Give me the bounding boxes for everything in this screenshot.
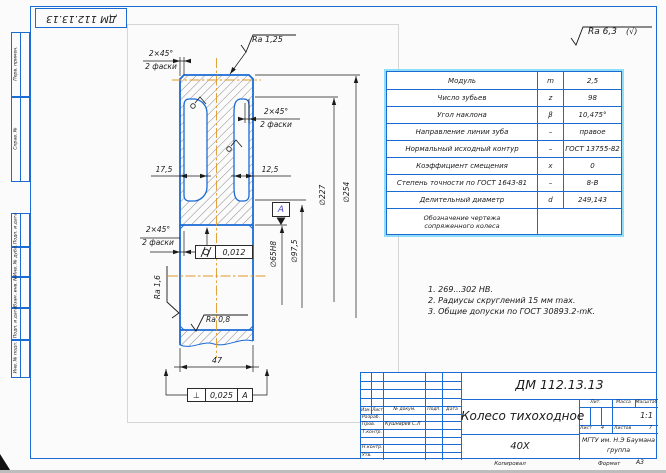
col-podp: Подп. bbox=[426, 407, 442, 412]
dim-ra-od: Ra 1,25 bbox=[252, 36, 298, 45]
line bbox=[601, 407, 602, 425]
doc-number: ДМ 112.13.13 bbox=[461, 377, 658, 392]
param-symbol: – bbox=[537, 175, 563, 191]
sheets-label: Листов bbox=[614, 426, 631, 431]
cylindricity-icon bbox=[196, 246, 215, 258]
general-roughness-bracket: (√) bbox=[626, 28, 648, 37]
sig-razrab: Разраб. bbox=[362, 415, 380, 420]
technical-notes: 1. 269...302 НВ. 2. Радиусы скруглений 1… bbox=[428, 284, 628, 317]
material: 40Х bbox=[461, 441, 579, 452]
param-value: 10,475° bbox=[563, 107, 621, 123]
table-row: Делительный диаметрd249,143 bbox=[387, 191, 621, 208]
format-label: Формат bbox=[598, 461, 620, 467]
param-symbol: d bbox=[537, 192, 563, 208]
note-3: 3. Общие допуски по ГОСТ 30893.2-mK. bbox=[428, 306, 628, 317]
note-1: 1. 269...302 НВ. bbox=[428, 284, 628, 295]
param-label: Нормальный исходный контур bbox=[387, 141, 537, 157]
chamfer-note-mid: 2×45° bbox=[256, 108, 296, 116]
col-list: Лист bbox=[372, 407, 383, 412]
gear-parameter-table[interactable]: Модульm2,5 Число зубьевz98 Угол наклонаβ… bbox=[386, 71, 622, 235]
scale-label: Масштаб bbox=[635, 400, 658, 405]
table-row: Степень точности по ГОСТ 1643-81–8-В bbox=[387, 174, 621, 191]
param-label: Степень точности по ГОСТ 1643-81 bbox=[387, 175, 537, 191]
sig-utv: Утв. bbox=[362, 453, 372, 458]
col-dokum: № докум. bbox=[384, 407, 425, 412]
datum-label: А bbox=[272, 202, 290, 217]
sig-nkontr: Н.контр. bbox=[362, 445, 383, 450]
dim-rim: ∅227 bbox=[319, 175, 327, 215]
chamfer-note-bottom-sub: 2 фаски bbox=[136, 239, 180, 247]
dim-web-left: 17,5 bbox=[150, 166, 178, 174]
perpendicularity-frame: ⊥ 0,025 А bbox=[187, 388, 253, 402]
chamfer-note-mid-sub: 2 фаски bbox=[254, 121, 298, 129]
table-row: Число зубьевz98 bbox=[387, 89, 621, 106]
col-data: Дата bbox=[443, 407, 461, 412]
dim-bore: ∅65H8 bbox=[270, 234, 278, 274]
line bbox=[361, 389, 461, 390]
sheet-number: 4 bbox=[601, 426, 604, 431]
table-row: Угол наклонаβ10,475° bbox=[387, 106, 621, 123]
line bbox=[461, 434, 579, 435]
param-symbol: x bbox=[537, 158, 563, 174]
param-symbol: z bbox=[537, 90, 563, 106]
line bbox=[361, 398, 461, 399]
line bbox=[383, 373, 384, 460]
datum-letter: А bbox=[278, 205, 284, 215]
col-izm: Изм. bbox=[361, 407, 371, 412]
param-label: Число зубьев bbox=[387, 90, 537, 106]
param-label: Угол наклона bbox=[387, 107, 537, 123]
sheet-label: Лист bbox=[580, 426, 592, 431]
param-value: ГОСТ 13755-82 bbox=[563, 141, 621, 157]
line bbox=[590, 407, 591, 425]
lit-label: Лит. bbox=[579, 400, 612, 405]
line bbox=[361, 452, 461, 453]
table-row: Модульm2,5 bbox=[387, 72, 621, 89]
dim-od: ∅254 bbox=[343, 172, 351, 212]
perpendicularity-datum: А bbox=[237, 389, 252, 401]
general-roughness-value: Ra 6,3 bbox=[588, 28, 624, 38]
param-label: Делительный диаметр bbox=[387, 192, 537, 208]
chamfer-note-top: 2×45° bbox=[141, 50, 181, 58]
title-block: Изм. Лист № докум. Подп. Дата Разраб. Пр… bbox=[360, 372, 657, 459]
param-label: Направление линии зуба bbox=[387, 124, 537, 140]
param-symbol: m bbox=[537, 72, 563, 89]
line bbox=[361, 381, 461, 382]
param-label: Коэффициент смещения bbox=[387, 158, 537, 174]
line bbox=[579, 433, 658, 434]
param-symbol: – bbox=[537, 141, 563, 157]
sig-prov-name: Кушнарев С.Л bbox=[385, 422, 421, 427]
drawing-sheet: ДМ 112.13.13 Перв. примен. Справ. № Подп… bbox=[0, 0, 666, 473]
chamfer-note-top-sub: 2 фаски bbox=[139, 63, 183, 71]
table-row: Нормальный исходный контур–ГОСТ 13755-82 bbox=[387, 140, 621, 157]
param-label: Модуль bbox=[387, 72, 537, 89]
dim-width: 47 bbox=[206, 357, 228, 366]
sheets-total: 7 bbox=[649, 426, 652, 431]
mass-label: Масса bbox=[612, 400, 635, 405]
copied-label: Копировал bbox=[470, 461, 550, 467]
organization: МГТУ им. Н.Э Баумана bbox=[579, 437, 658, 444]
sig-tkontr: Т.контр. bbox=[362, 430, 382, 435]
param-symbol: – bbox=[537, 124, 563, 140]
line bbox=[361, 437, 461, 438]
table-footer-row: Обозначение чертежа сопряженного колеса bbox=[387, 208, 621, 234]
scale-value: 1:1 bbox=[635, 411, 658, 420]
format-value: А3 bbox=[636, 460, 644, 467]
dim-web-right: 12,5 bbox=[256, 166, 284, 174]
param-value: 98 bbox=[563, 90, 621, 106]
chamfer-note-bottom: 2×45° bbox=[138, 226, 178, 234]
perpendicularity-icon: ⊥ bbox=[188, 389, 205, 401]
note-2: 2. Радиусы скруглений 15 мм max. bbox=[428, 295, 628, 306]
param-value: 0 bbox=[563, 158, 621, 174]
footer-empty bbox=[537, 209, 621, 234]
dim-ra-face: Ra 1,6 bbox=[154, 267, 162, 307]
footer-label: Обозначение чертежа сопряженного колеса bbox=[387, 209, 537, 234]
part-name: Колесо тихоходное bbox=[461, 409, 579, 423]
param-symbol: β bbox=[537, 107, 563, 123]
param-value: правое bbox=[563, 124, 621, 140]
table-row: Коэффициент смещенияx0 bbox=[387, 157, 621, 174]
table-row: Направление линии зуба–правое bbox=[387, 123, 621, 140]
param-value: 8-В bbox=[563, 175, 621, 191]
param-value: 249,143 bbox=[563, 192, 621, 208]
dim-ra-bore: Ra 0,8 bbox=[206, 316, 246, 324]
cylindricity-frame: 0,012 bbox=[195, 245, 253, 259]
param-value: 2,5 bbox=[563, 72, 621, 89]
sig-prov: Пров. bbox=[362, 422, 375, 427]
line bbox=[425, 373, 426, 460]
group: группа bbox=[579, 447, 658, 454]
perpendicularity-value: 0,025 bbox=[205, 389, 237, 401]
dim-hub: ∅97,5 bbox=[291, 231, 299, 271]
line bbox=[442, 373, 443, 460]
cylindricity-value: 0,012 bbox=[215, 246, 252, 258]
